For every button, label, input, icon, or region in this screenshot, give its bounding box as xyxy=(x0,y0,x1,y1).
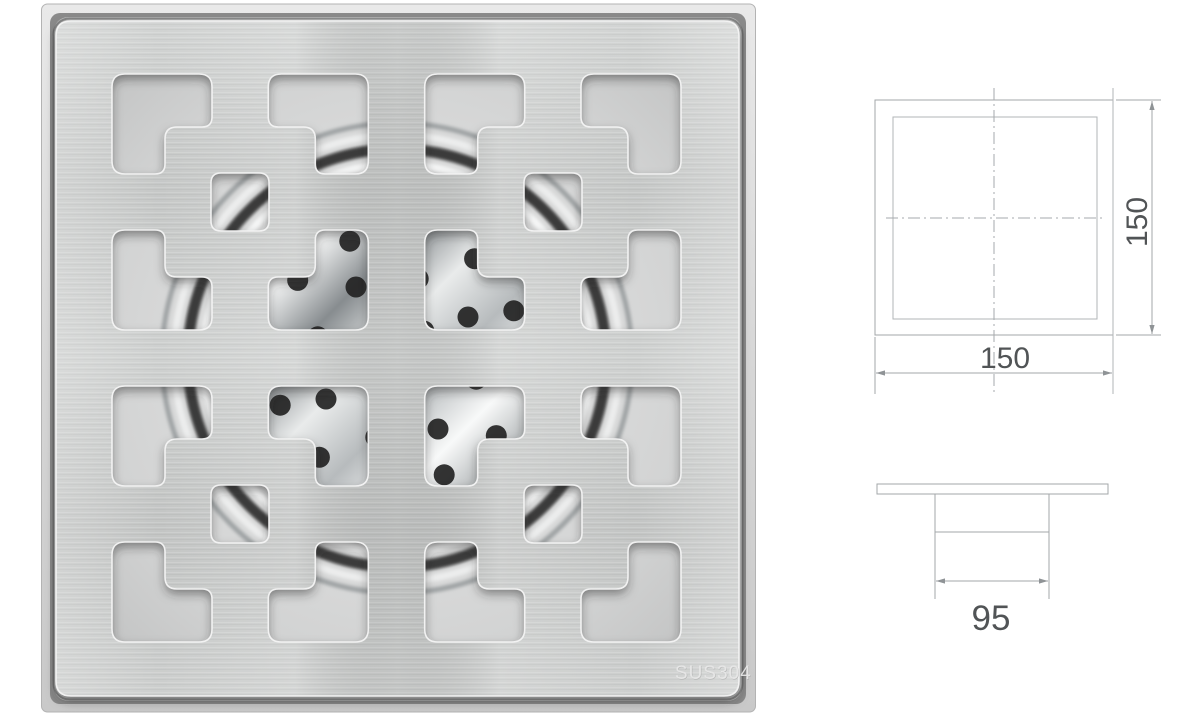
dim-arrow-up-icon xyxy=(1149,101,1154,110)
dimension-drawings: 150 150 95 xyxy=(0,0,1199,717)
dim-arrow-right-icon xyxy=(1039,578,1048,583)
top-view-height-label: 150 xyxy=(1121,197,1154,247)
side-view-drawing: 95 xyxy=(877,484,1108,638)
dim-arrow-right-icon xyxy=(1103,370,1112,375)
top-view-drawing: 150 150 xyxy=(875,88,1161,394)
dim-arrow-left-icon xyxy=(936,578,945,583)
side-view-width-label: 95 xyxy=(972,599,1011,638)
top-view-width-label: 150 xyxy=(980,342,1030,375)
dim-arrow-down-icon xyxy=(1149,325,1154,334)
page: SUS304 SUS304 150 150 xyxy=(0,0,1199,717)
dim-arrow-left-icon xyxy=(876,370,885,375)
side-view-flange xyxy=(877,484,1108,494)
